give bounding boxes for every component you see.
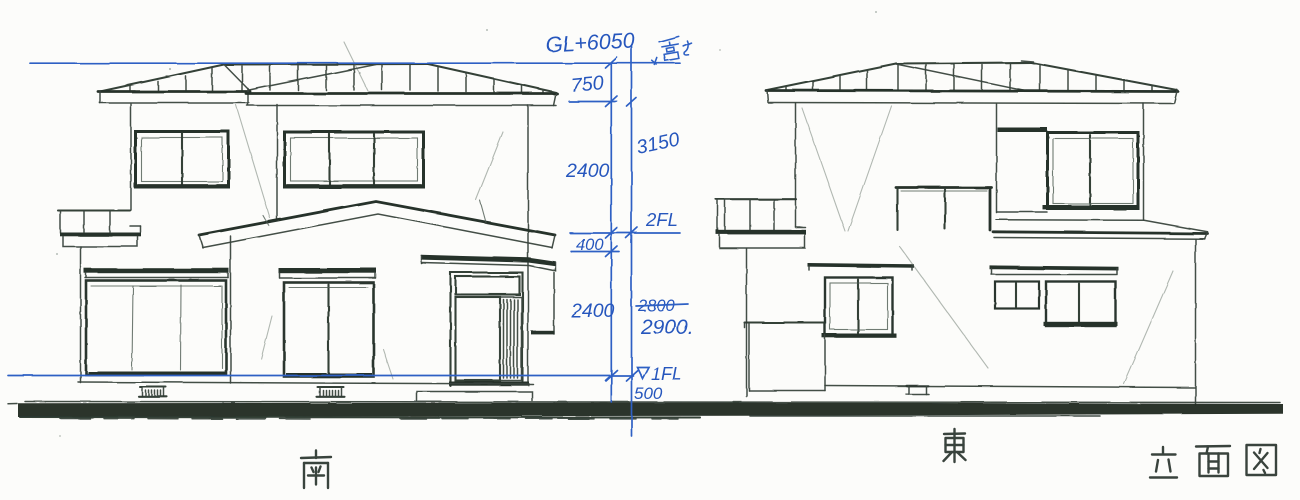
svg-text:GL+6050: GL+6050 <box>545 28 635 57</box>
svg-text:750: 750 <box>570 72 605 97</box>
svg-text:1FL: 1FL <box>651 364 682 384</box>
svg-text:2400: 2400 <box>565 160 610 182</box>
svg-text:2400: 2400 <box>570 300 615 322</box>
svg-text:500: 500 <box>634 384 663 403</box>
svg-text:400: 400 <box>576 236 604 254</box>
svg-text:2900.: 2900. <box>640 316 694 339</box>
svg-text:2FL: 2FL <box>645 209 678 230</box>
